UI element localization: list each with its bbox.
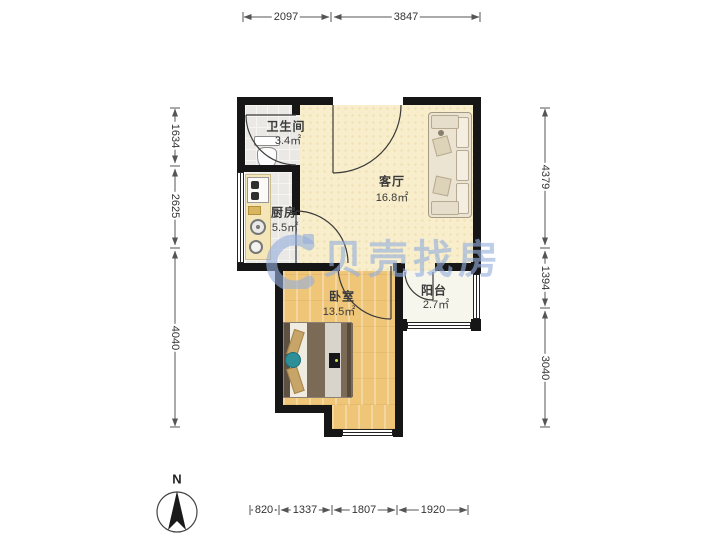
stove-burner: [251, 181, 259, 189]
bed-round-cushion: [285, 352, 301, 368]
dim-right-1: 4379: [539, 163, 551, 191]
wall: [245, 165, 292, 172]
balcony-bottom-window: [407, 322, 471, 329]
kitchen-pot: [249, 240, 263, 254]
dim-bottom-3: 1807: [350, 504, 378, 516]
sofa-cup: [438, 130, 444, 136]
bed-tv-device: [329, 353, 340, 368]
sofa-pillow: [432, 135, 452, 157]
balcony-area: 2.7㎡: [423, 296, 449, 312]
wall: [275, 263, 283, 413]
balcony-right-window: [473, 274, 480, 319]
kitchen-window: [237, 172, 244, 263]
bedroom-label: 卧室: [329, 288, 355, 305]
dim-bottom-4: 1920: [419, 504, 447, 516]
kitchen-sink: [250, 219, 266, 235]
bed-footboard: [347, 323, 351, 397]
dim-left-2: 2625: [169, 192, 181, 220]
wall-post: [471, 319, 481, 331]
dim-right-3: 3040: [539, 354, 551, 382]
living-room-area: 16.8㎡: [376, 189, 408, 205]
wall: [237, 97, 245, 172]
dim-left-3: 4040: [169, 324, 181, 352]
bed: [283, 322, 352, 398]
kitchen-label: 厨房: [271, 204, 297, 221]
bedroom-window: [342, 429, 393, 436]
stove: [247, 177, 269, 203]
north-arrow-icon: [157, 491, 197, 532]
wall: [393, 263, 405, 271]
wall: [292, 97, 300, 115]
wall: [237, 263, 340, 271]
bathroom-area: 3.4㎡: [275, 132, 301, 148]
sofa: [428, 112, 472, 218]
kitchen-shelf: [248, 206, 261, 215]
wall: [473, 97, 481, 269]
wall-post: [397, 319, 407, 331]
wall-post: [471, 262, 481, 274]
living-room-label: 客厅: [379, 173, 405, 190]
stove-burner: [251, 192, 259, 200]
sofa-pillow: [432, 176, 451, 197]
floor-plan: 卫生间 3.4㎡ 厨房 5.5㎡ 客厅 16.8㎡ 卧室 13.5㎡ 阳台 2.…: [0, 0, 720, 540]
device-light: [335, 359, 338, 362]
wall: [324, 429, 342, 437]
dim-right-2: 1394: [539, 264, 551, 292]
sofa-back-cushion: [456, 150, 469, 181]
dim-left-1: 1634: [169, 122, 181, 150]
sofa-armrest: [431, 201, 459, 215]
bedroom-area: 13.5㎡: [323, 303, 355, 319]
sink-drain: [256, 225, 260, 229]
wall: [395, 271, 403, 437]
north-letter: N: [172, 472, 181, 487]
wall: [237, 97, 333, 105]
dim-bottom-1: 820: [253, 504, 275, 516]
dim-bottom-2: 1337: [291, 504, 319, 516]
kitchen-counter: [245, 174, 271, 260]
kitchen-area: 5.5㎡: [272, 219, 298, 235]
dimension-lines-left: [170, 108, 180, 427]
dim-top-1: 2097: [272, 11, 300, 23]
wall: [403, 97, 481, 105]
dim-top-2: 3847: [392, 11, 420, 23]
bedroom-floor-extension: [332, 405, 395, 429]
sofa-armrest: [431, 115, 459, 129]
